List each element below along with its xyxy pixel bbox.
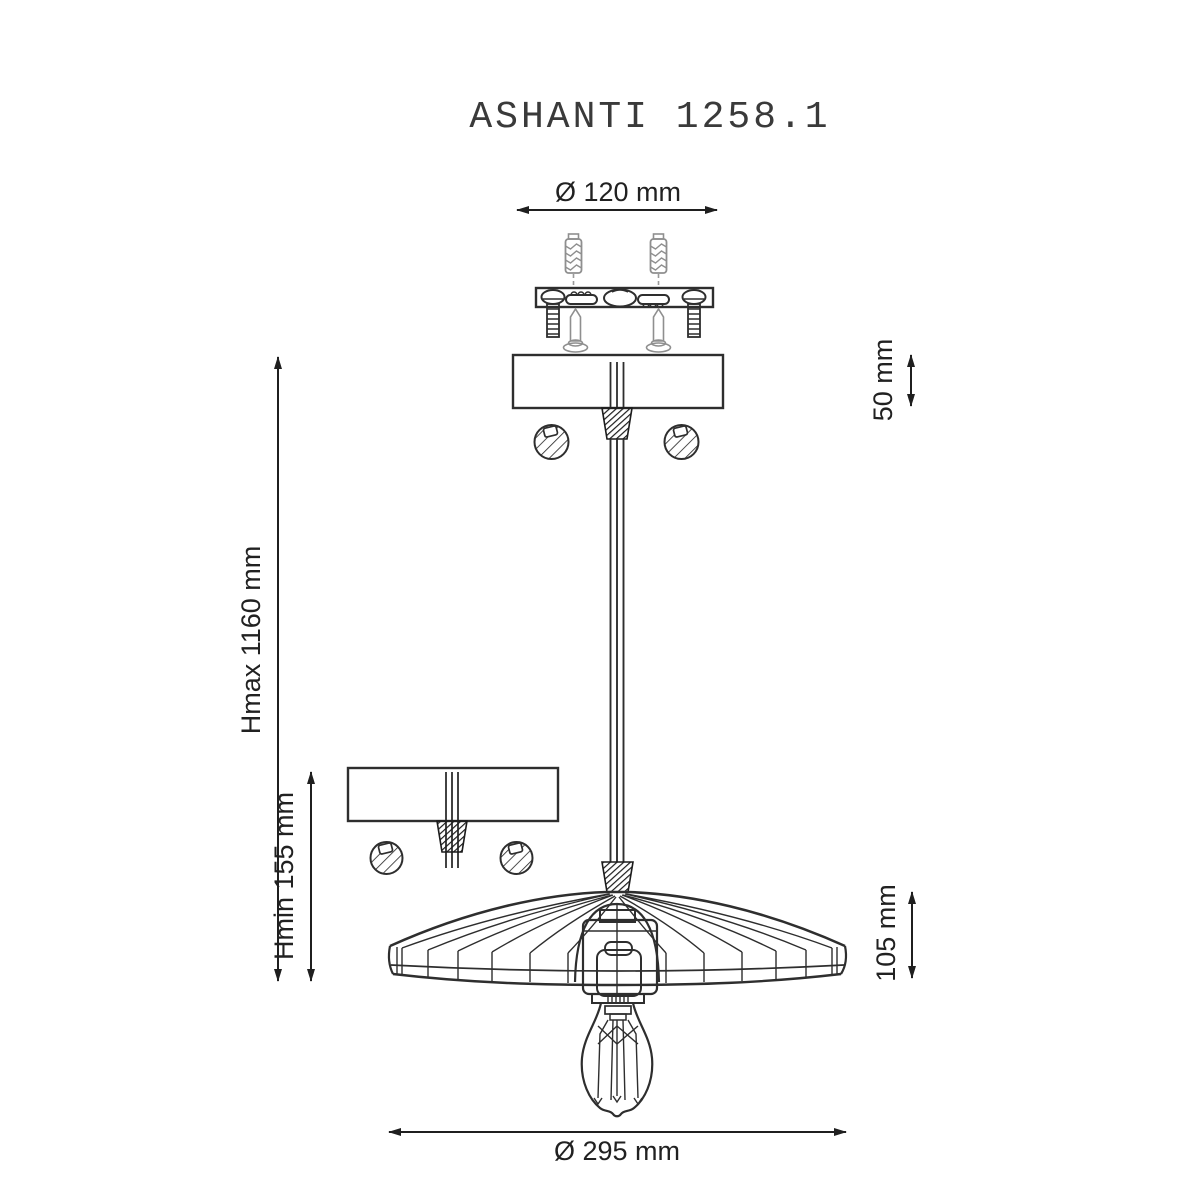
page-title: ASHANTI 1258.1: [469, 96, 830, 139]
technical-drawing-canvas: ASHANTI 1258.1 Ø 120 mm: [0, 0, 1200, 1200]
fixing-nut-right-icon: [665, 425, 699, 459]
cable-grip-icon: [602, 408, 632, 439]
shade-cable-grip-icon: [602, 862, 633, 892]
bolt-right-icon: [683, 290, 706, 337]
bulb-stem-collar: [605, 1006, 631, 1014]
mounting-screw-right-icon: [647, 309, 671, 352]
socket-switch-bump: [605, 942, 632, 955]
dimension-canopy-height: 50 mm: [868, 339, 911, 422]
technical-drawing-page: ASHANTI 1258.1 Ø 120 mm: [0, 0, 1200, 1200]
mounting-bracket-icon: [536, 288, 713, 352]
dimension-label-canopy-diameter: Ø 120 mm: [555, 177, 681, 207]
cable-inside-canopy: [611, 362, 624, 408]
socket-switch-icon: [597, 950, 641, 996]
dimension-shade-diameter: Ø 295 mm: [389, 1132, 846, 1166]
suspension-cable-icon: [611, 439, 624, 862]
dimension-label-shade-diameter: Ø 295 mm: [554, 1136, 680, 1166]
dimension-label-height-min: Hmin 155 mm: [269, 792, 299, 960]
fixing-nut-min-left-icon: [371, 842, 403, 874]
dimension-canopy-diameter: Ø 120 mm: [517, 177, 717, 210]
keyhole-slot-left-icon: [566, 292, 597, 304]
wall-plug-icon: [566, 234, 667, 287]
dimension-label-height-max: Hmax 1160 mm: [236, 546, 266, 735]
dimension-shade-height: 105 mm: [871, 884, 912, 982]
dimension-height-min: Hmin 155 mm: [269, 772, 311, 981]
bolt-left-icon: [542, 290, 565, 337]
canopy-min-height-icon: [348, 768, 558, 874]
mounting-screw-left-icon: [564, 309, 588, 352]
filament-braces: [598, 1026, 638, 1044]
keyhole-slot-right-icon: [638, 295, 669, 307]
cable-hole-notch: [612, 290, 628, 292]
dimension-label-shade-height: 105 mm: [871, 884, 901, 982]
fixing-nut-left-icon: [535, 425, 569, 459]
cable-grip-min-icon: [437, 821, 467, 852]
dimension-label-canopy-height: 50 mm: [868, 339, 898, 422]
filament-feet: [594, 1096, 642, 1104]
canopy-icon: [513, 355, 723, 459]
lamp-socket-icon: [575, 904, 659, 1003]
cable-hole-icon: [604, 290, 636, 307]
light-bulb-icon: [582, 1003, 653, 1116]
fixing-nut-min-right-icon: [501, 842, 533, 874]
